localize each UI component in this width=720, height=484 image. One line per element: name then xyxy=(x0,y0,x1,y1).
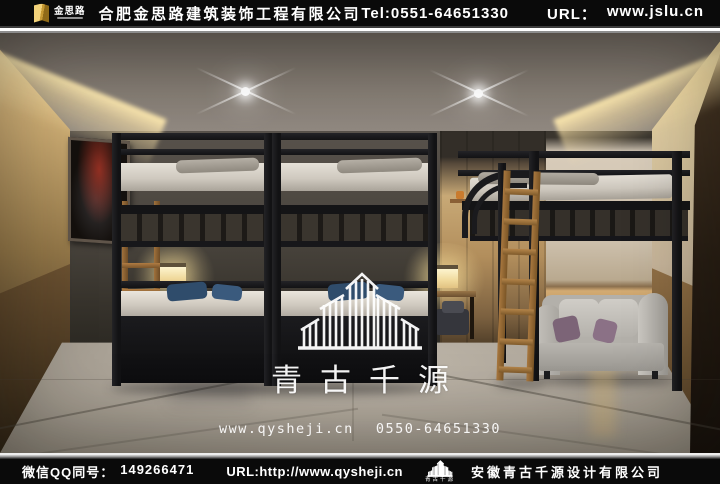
upper-mattress xyxy=(117,163,268,191)
skyline-logo-icon xyxy=(423,460,457,477)
bed-post xyxy=(272,133,281,386)
wechat-qq-label: 微信QQ同号： xyxy=(22,462,114,481)
ladder-rung xyxy=(502,278,535,285)
bed-post xyxy=(428,133,437,386)
upper-frame-rail xyxy=(112,205,273,214)
footer-company-name: 安徽青古千源设计有限公司 xyxy=(471,462,663,481)
upper-guard-rail xyxy=(112,149,273,155)
loft-guard-rail xyxy=(458,151,690,158)
qinggu-logo-text: 青古千源 xyxy=(425,478,455,484)
sofa-foot xyxy=(652,371,658,379)
ceiling-spotlight xyxy=(474,89,483,98)
ladder-rung xyxy=(503,248,536,255)
top-separator xyxy=(0,26,720,33)
brand-mark: 金思路 xyxy=(54,7,86,20)
blue-pillow xyxy=(211,283,242,301)
ladder-rung xyxy=(505,188,538,195)
gold-book-icon xyxy=(34,4,49,23)
console-leg xyxy=(470,297,474,339)
ladder-rung xyxy=(501,308,534,315)
dormitory-render: 青古千源 www.qysheji.cn 0550-64651330 xyxy=(0,33,720,453)
header-url-value: www.jslu.cn xyxy=(607,3,704,24)
upper-frame-rail xyxy=(272,205,437,214)
sofa xyxy=(534,287,668,379)
sofa-foot xyxy=(544,371,550,379)
blue-pillow xyxy=(374,283,405,301)
footer-bar: 微信QQ同号： 149266471 URL:http://www.qysheji… xyxy=(0,459,720,484)
header-url: URL： www.jslu.cn xyxy=(547,3,704,24)
upper-guard-rail xyxy=(272,149,437,155)
footer-url: URL:http://www.qysheji.cn xyxy=(226,464,403,479)
header-company-name: 合肥金思路建筑装饰工程有限公司 xyxy=(99,3,362,24)
upper-bed-underside xyxy=(276,214,433,247)
upper-guard-rail xyxy=(272,133,437,140)
upper-bed-underside xyxy=(116,214,269,247)
ladder-rung xyxy=(499,366,532,373)
upper-guard-rail xyxy=(112,133,273,140)
blue-pillow xyxy=(166,281,207,301)
header-url-label: URL： xyxy=(547,3,597,24)
loft-post xyxy=(672,151,682,391)
wechat-qq-info: 微信QQ同号： 149266471 xyxy=(22,462,194,481)
wood-loft-ladder xyxy=(496,170,543,381)
bed-post xyxy=(112,133,121,386)
jinsilu-brand: 金思路 xyxy=(34,4,86,23)
upper-mattress xyxy=(277,163,432,191)
brand-mark-text: 金思路 xyxy=(54,7,86,17)
ladder-rung xyxy=(504,218,537,225)
brand-mark-underline xyxy=(57,17,83,19)
bed-base xyxy=(274,316,435,383)
purple-pillow xyxy=(552,315,581,344)
header-bar: 金思路 合肥金思路建筑装饰工程有限公司 Tel:0551-64651330 UR… xyxy=(0,0,720,26)
wechat-qq-number: 149266471 xyxy=(120,462,194,481)
bed-base xyxy=(114,316,271,383)
sofa-seat xyxy=(538,343,664,371)
header-telephone: Tel:0551-64651330 xyxy=(361,5,509,22)
qinggu-logo: 青古千源 xyxy=(423,460,457,484)
ceiling-spotlight xyxy=(241,87,250,96)
promo-render-image: 金思路 合肥金思路建筑装饰工程有限公司 Tel:0551-64651330 UR… xyxy=(0,0,720,484)
bunk-bed-left xyxy=(112,133,273,388)
shelf-decor xyxy=(456,191,464,199)
storage-bag xyxy=(442,301,464,313)
blue-pillow xyxy=(327,281,368,301)
bunk-bed-center xyxy=(272,133,437,388)
ladder-rung xyxy=(500,338,533,345)
